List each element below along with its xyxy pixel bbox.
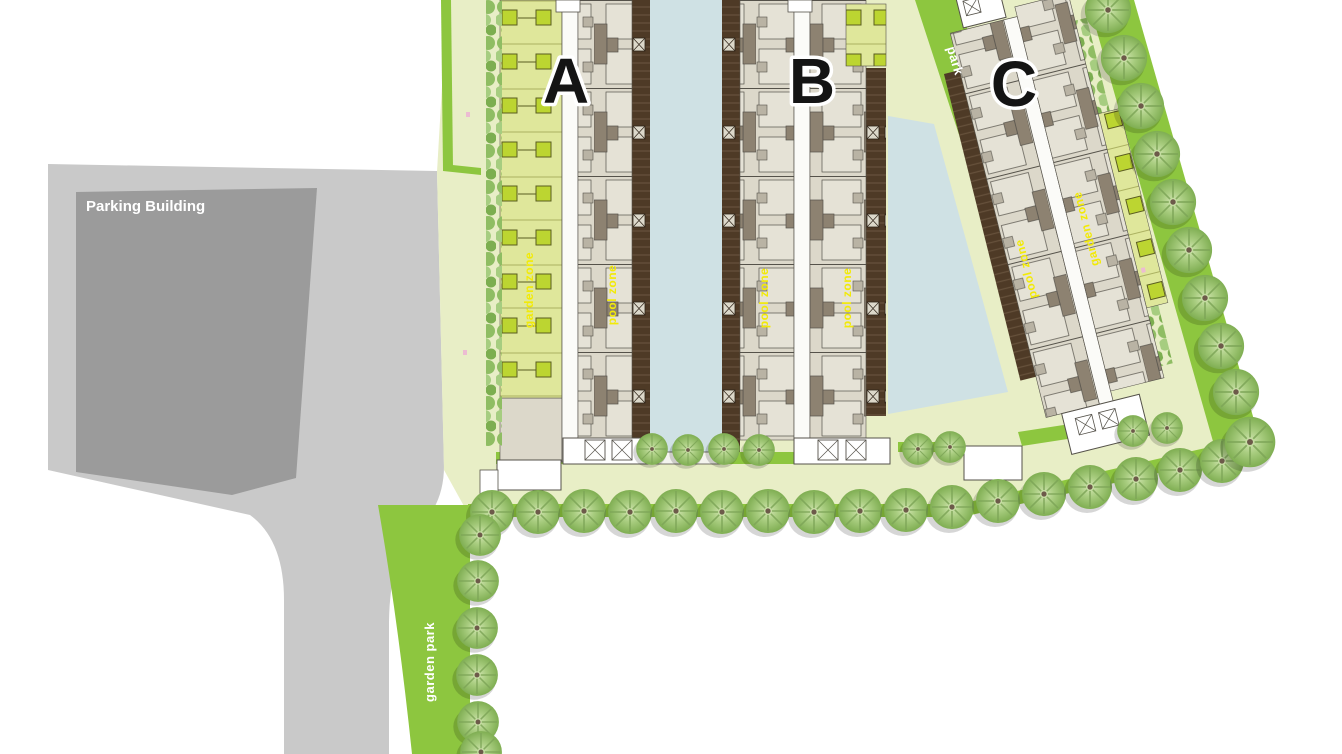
green-stripe-top-left — [441, 0, 453, 170]
deck-b-right-sq — [866, 68, 886, 416]
zone-label-b-pool-right: pool zone — [840, 268, 854, 329]
zone-label-a-pool: pool zone — [605, 265, 619, 326]
parking-building: Parking Building — [76, 188, 317, 495]
tower-c-label: C — [991, 48, 1037, 120]
tower-a-label: A — [543, 45, 589, 117]
flower-dot — [463, 350, 467, 355]
deck-b-left-sq — [722, 0, 740, 452]
tower-b-units-left — [740, 0, 794, 440]
flower-dot — [466, 112, 470, 117]
tower-a-shrubs — [486, 0, 502, 446]
tower-b-label: B — [789, 45, 835, 117]
deck-a-sq — [632, 0, 650, 452]
site-plan: Parking Building — [0, 0, 1342, 754]
tower-b-garden-patch — [846, 4, 886, 66]
pool-a-b — [650, 0, 722, 452]
parking-building-label: Parking Building — [86, 198, 205, 215]
garden-park-label: garden park — [422, 622, 437, 702]
zone-label-b-pool-left: pool zone — [757, 268, 771, 329]
zone-label-a-garden: garden zone — [522, 252, 536, 328]
site-plan-page: Parking Building — [0, 0, 1342, 754]
